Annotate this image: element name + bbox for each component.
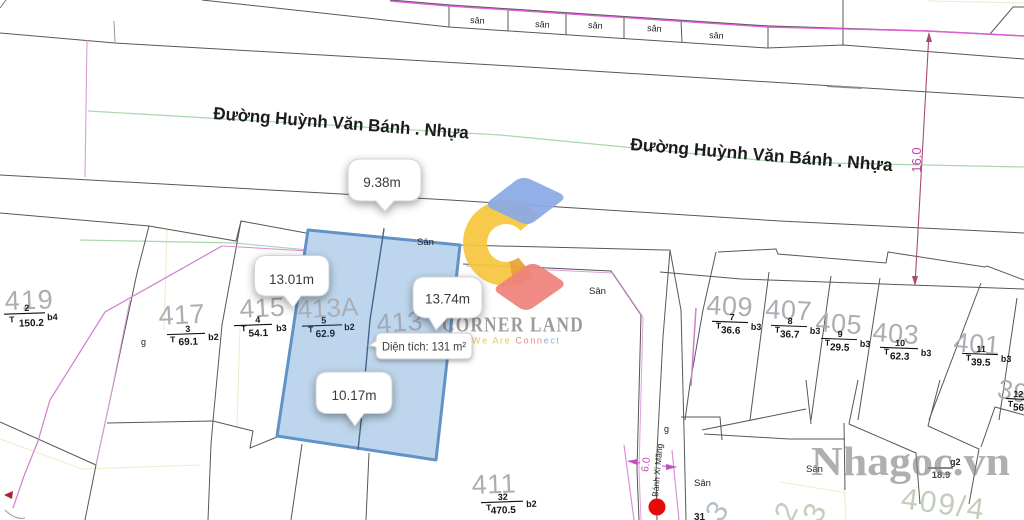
svg-text:150.2: 150.2 [19,318,45,330]
svg-text:Diện tích: 131 m²: Diện tích: 131 m² [382,340,466,354]
svg-text:11: 11 [976,344,986,354]
svg-text:8: 8 [787,316,792,326]
svg-text:g: g [664,424,669,434]
svg-text:56: 56 [1013,402,1024,414]
svg-text:sân: sân [647,23,662,34]
svg-text:12: 12 [1013,389,1024,400]
svg-text:b2: b2 [526,499,537,509]
svg-text:b3: b3 [810,326,821,336]
svg-text:470.5: 470.5 [491,505,517,517]
svg-text:36.6: 36.6 [721,325,741,337]
svg-text:b3: b3 [1001,354,1012,364]
svg-text:7: 7 [729,312,734,322]
svg-text:sân: sân [588,20,603,31]
svg-text:sân: sân [535,19,550,30]
svg-text:sân: sân [470,15,485,26]
svg-text:39.5: 39.5 [971,357,991,369]
svg-text:6.0: 6.0 [639,456,653,472]
svg-text:Sân: Sân [417,237,434,248]
svg-text:We Are Connect: We Are Connect [472,336,560,346]
svg-text:g: g [141,337,146,347]
svg-text:Sân: Sân [694,478,711,489]
svg-text:3: 3 [185,324,190,334]
svg-text:b3: b3 [751,322,762,332]
svg-text:b3: b3 [921,348,932,358]
svg-text:62.9: 62.9 [315,329,335,341]
svg-text:10: 10 [895,338,905,348]
svg-text:31: 31 [694,512,706,520]
svg-text:2: 2 [24,303,29,313]
svg-text:29.5: 29.5 [830,342,850,354]
svg-text:36.7: 36.7 [780,329,800,341]
svg-text:Nhagoc.vn: Nhagoc.vn [811,438,1010,484]
svg-text:b4: b4 [47,312,58,322]
svg-text:417: 417 [158,299,206,331]
svg-text:b3: b3 [860,339,871,349]
svg-text:62.3: 62.3 [890,351,910,363]
svg-text:411: 411 [471,468,517,500]
svg-text:13.01m: 13.01m [269,272,314,287]
svg-text:9: 9 [837,329,842,339]
svg-text:b2: b2 [344,322,355,332]
svg-text:b3: b3 [276,323,287,333]
svg-text:b2: b2 [208,332,219,342]
svg-text:13.74m: 13.74m [425,292,470,307]
svg-text:5: 5 [321,315,326,325]
svg-text:10.17m: 10.17m [331,388,376,403]
svg-text:69.1: 69.1 [178,337,198,349]
svg-text:9.38m: 9.38m [363,175,401,190]
svg-text:54.1: 54.1 [248,328,268,340]
svg-text:4: 4 [255,315,260,325]
svg-text:16.0: 16.0 [909,147,924,172]
svg-text:32: 32 [498,492,508,502]
svg-text:Sân: Sân [589,286,606,297]
svg-text:sân: sân [709,30,724,41]
